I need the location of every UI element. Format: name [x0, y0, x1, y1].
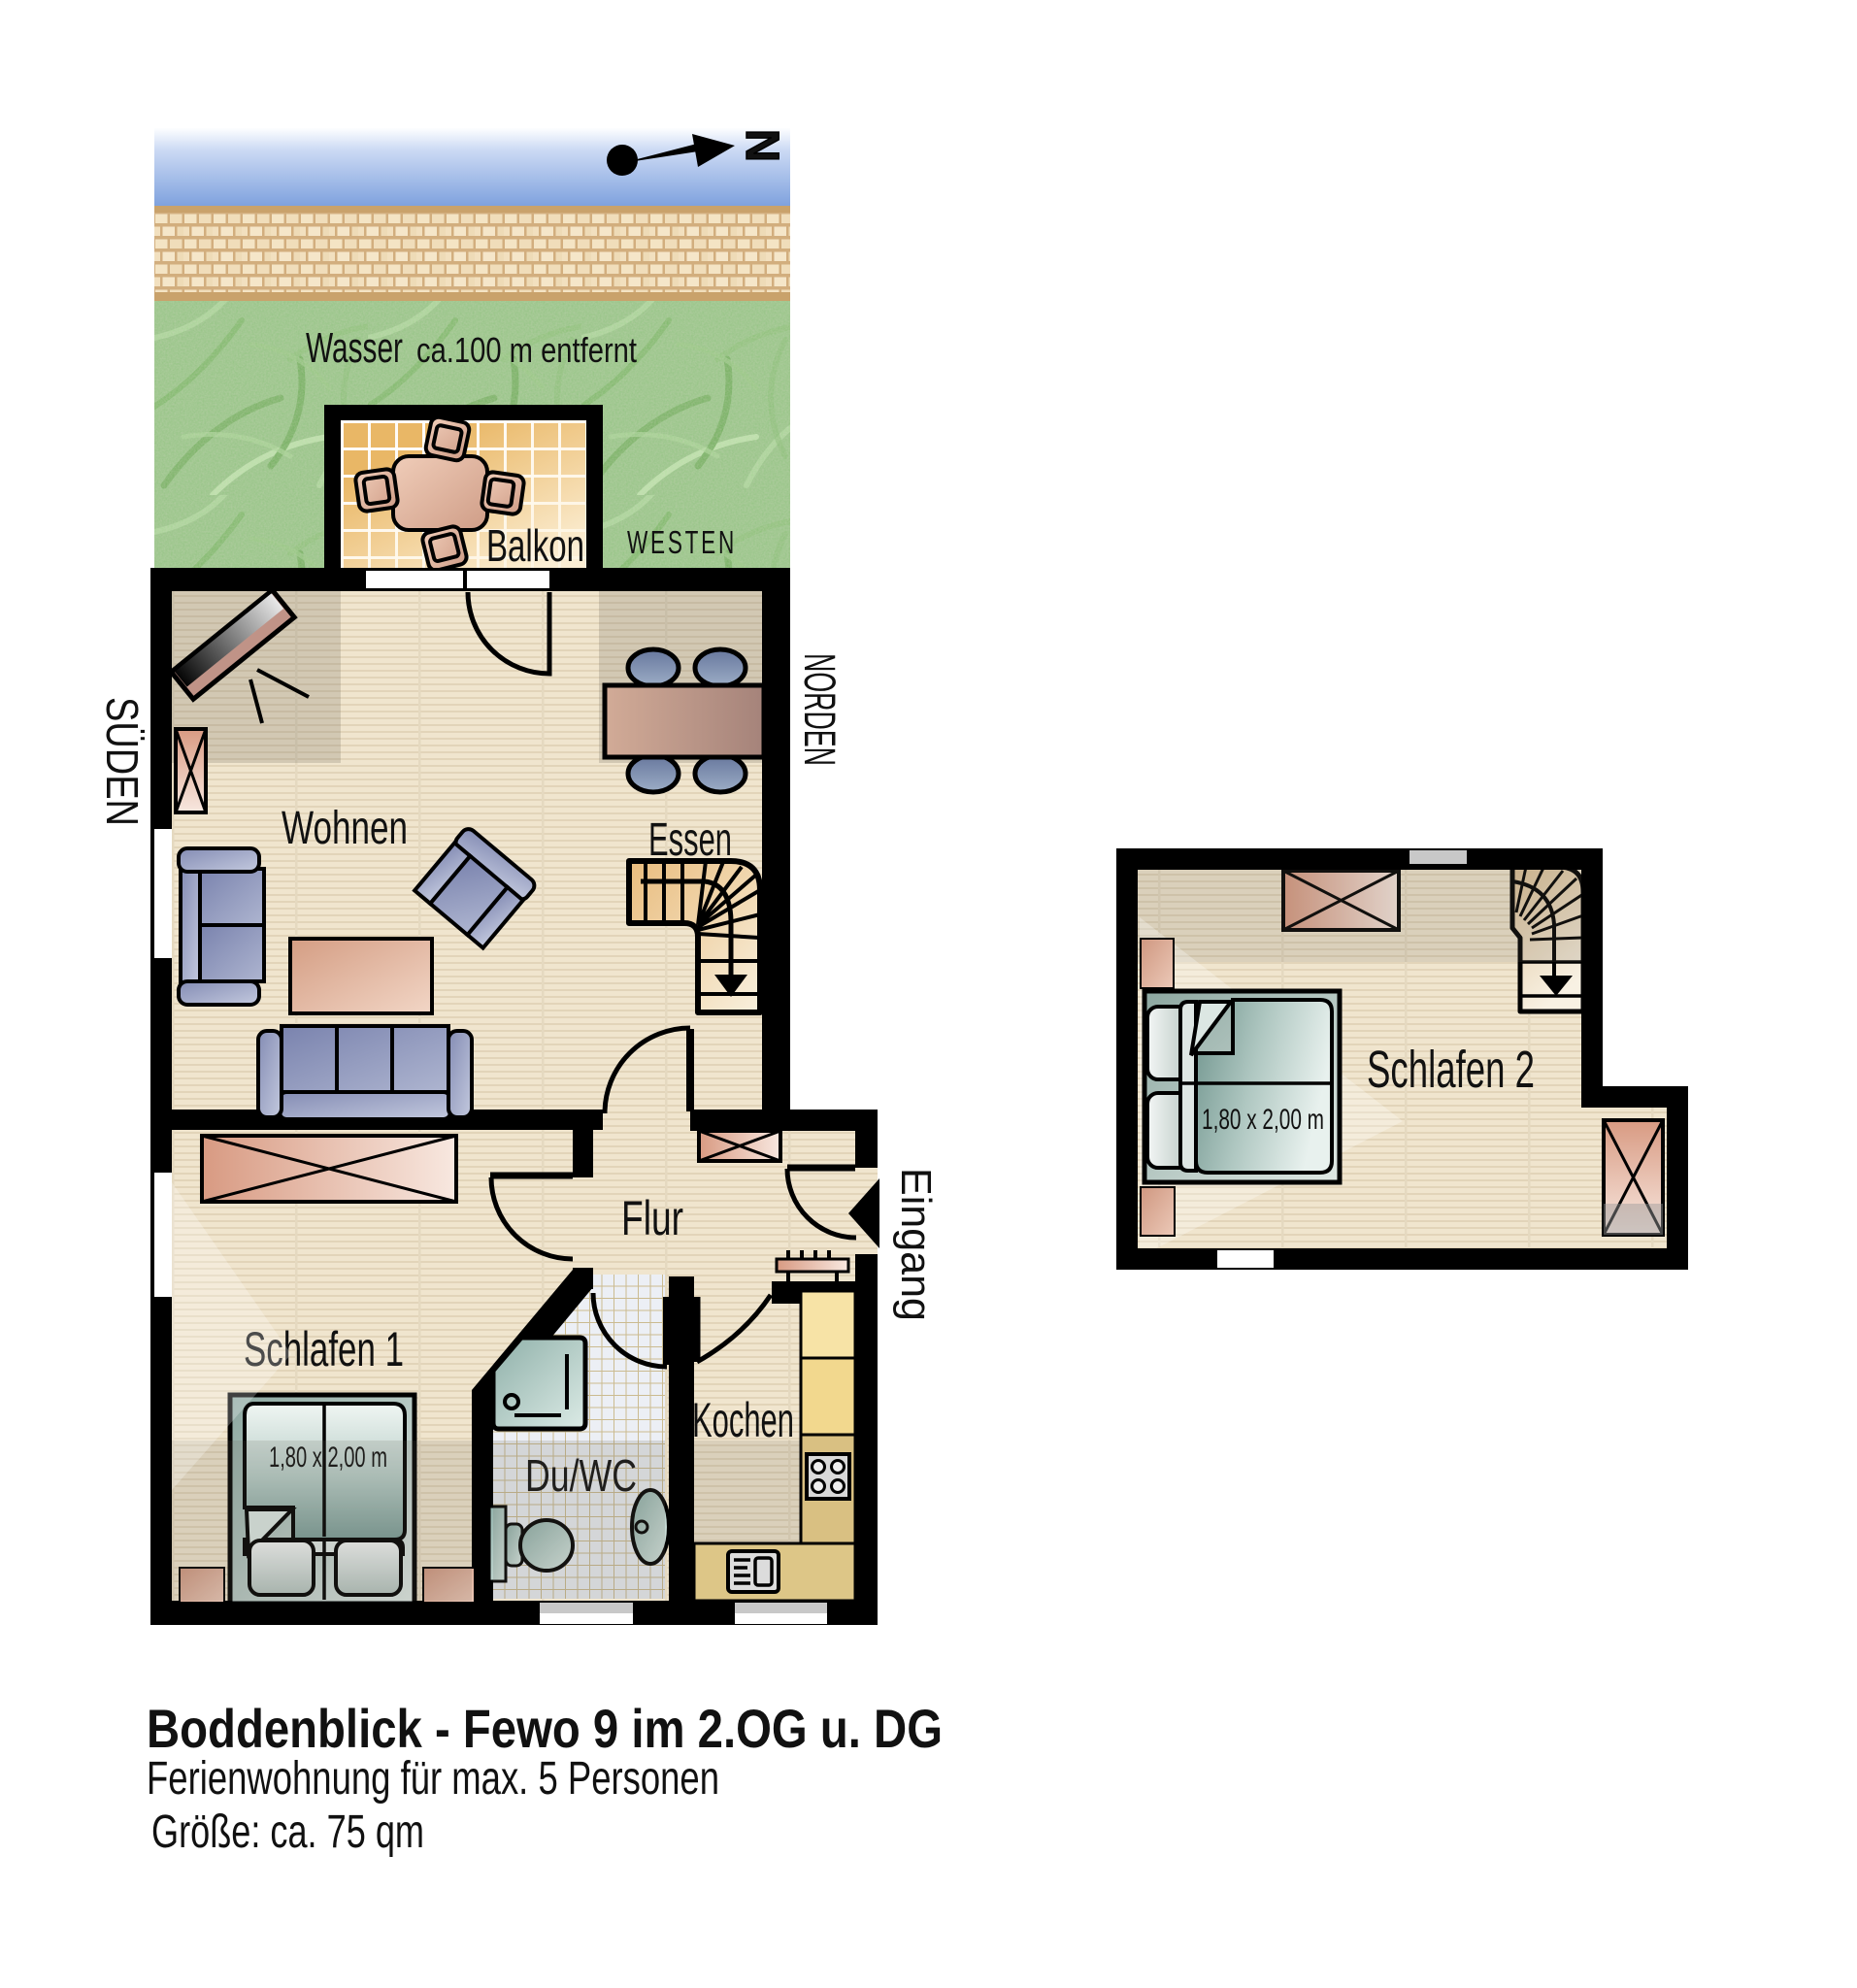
- svg-text:ca.100 m entfernt: ca.100 m entfernt: [416, 330, 637, 370]
- svg-text:SÜDEN: SÜDEN: [97, 697, 148, 826]
- svg-text:NORDEN: NORDEN: [795, 653, 845, 766]
- svg-text:Eingang: Eingang: [892, 1168, 940, 1321]
- svg-text:N: N: [736, 129, 787, 162]
- svg-text:Flur: Flur: [621, 1191, 683, 1245]
- svg-text:Wohnen: Wohnen: [282, 803, 408, 854]
- svg-text:Schlafen 2: Schlafen 2: [1367, 1041, 1535, 1099]
- svg-text:WESTEN: WESTEN: [627, 524, 737, 560]
- svg-text:Balkon: Balkon: [486, 520, 584, 571]
- svg-text:Wasser: Wasser: [306, 324, 403, 372]
- svg-text:1,80 x 2,00 m: 1,80 x 2,00 m: [1202, 1104, 1324, 1136]
- svg-text:Kochen: Kochen: [692, 1393, 794, 1447]
- svg-text:Größe: ca. 75 qm: Größe: ca. 75 qm: [151, 1806, 424, 1858]
- svg-text:Boddenblick - Fewo 9 im 2.OG u: Boddenblick - Fewo 9 im 2.OG u. DG: [147, 1698, 943, 1759]
- svg-text:Ferienwohnung für max. 5 Perso: Ferienwohnung für max. 5 Personen: [147, 1753, 719, 1805]
